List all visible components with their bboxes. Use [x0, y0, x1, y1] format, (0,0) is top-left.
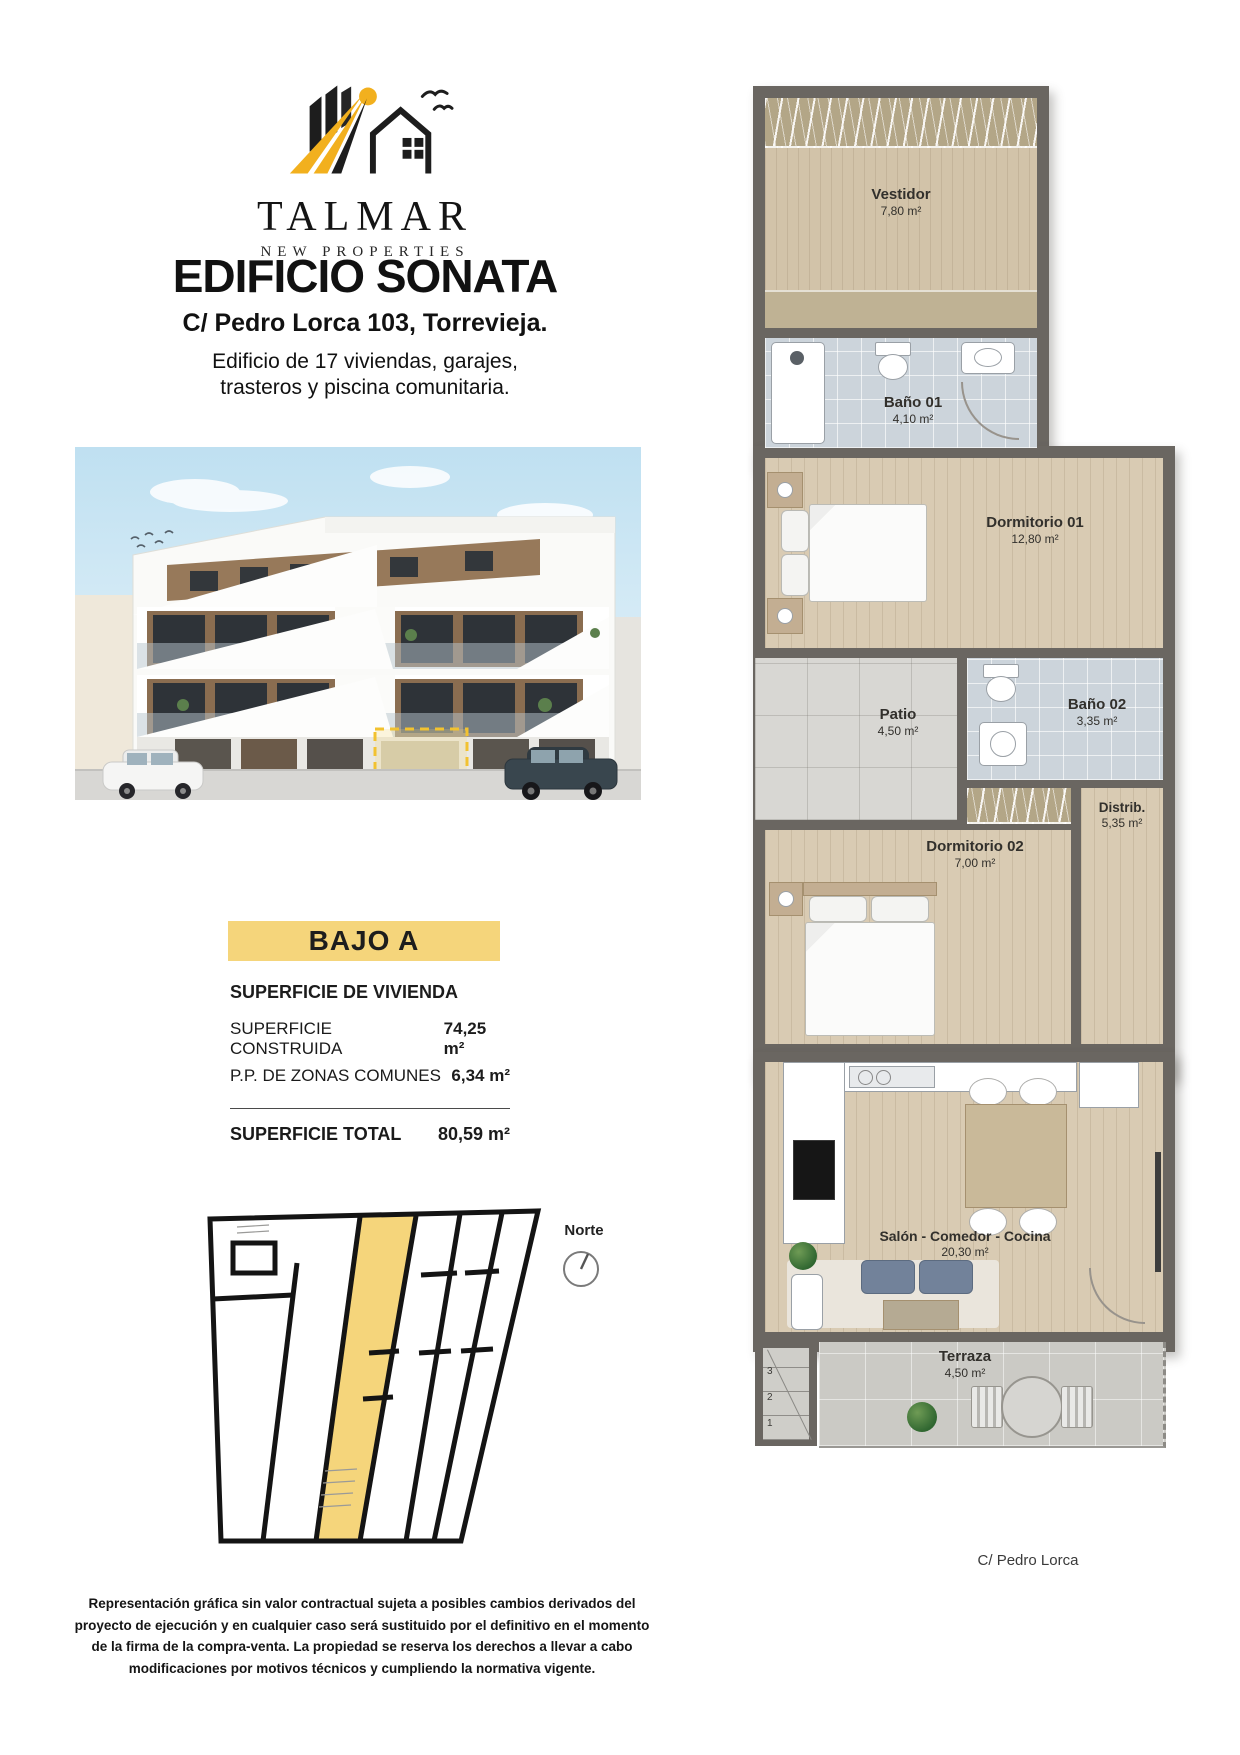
room-terraza: Terraza 4,50 m² — [819, 1342, 1166, 1448]
surface-row-label: SUPERFICIE CONSTRUIDA — [230, 1019, 444, 1059]
key-plan — [203, 1203, 548, 1548]
surface-row-value: 6,34 m² — [451, 1066, 510, 1086]
brochure-page: TALMAR NEW PROPERTIES EDIFICIO SONATA C/… — [0, 0, 1240, 1755]
street-label: C/ Pedro Lorca — [938, 1552, 1118, 1569]
room-label-dormitorio-01: Dormitorio 01 12,80 m² — [925, 514, 1145, 546]
surface-total-row: SUPERFICIE TOTAL 80,59 m² — [230, 1124, 510, 1145]
talmar-logo — [276, 80, 454, 188]
address: C/ Pedro Lorca 103, Torrevieja. — [40, 309, 690, 338]
logo-birds-icon — [422, 91, 452, 109]
surface-row-label: P.P. DE ZONAS COMUNES — [230, 1066, 441, 1086]
toilet-icon — [878, 354, 908, 380]
page-title: EDIFICIO SONATA — [40, 249, 690, 303]
dining-table-icon — [965, 1104, 1067, 1208]
wardrobe-hangers-icon — [967, 788, 1071, 824]
headboard — [803, 882, 937, 896]
room-label-bano-01: Baño 01 4,10 m² — [843, 394, 983, 426]
kitchen-sink-icon — [849, 1066, 935, 1088]
stair-step-number: 3 — [767, 1366, 773, 1377]
armchair-icon — [919, 1260, 973, 1294]
terrace-table-icon — [1001, 1376, 1063, 1438]
terrace-chair-icon — [1061, 1386, 1093, 1428]
neighbor-building-left — [75, 595, 133, 770]
surface-table-heading: SUPERFICIE DE VIVIENDA — [230, 982, 510, 1003]
washer-icon — [771, 342, 825, 444]
room-label-terraza: Terraza 4,50 m² — [885, 1348, 1045, 1380]
dining-chair-icon — [969, 1078, 1007, 1106]
room-distribuidor: Distrib. 5,35 m² — [1081, 788, 1163, 1044]
surface-total-value: 80,59 m² — [438, 1124, 510, 1145]
surface-table: SUPERFICIE DE VIVIENDA SUPERFICIE CONSTR… — [230, 982, 510, 1162]
coffee-table-icon — [883, 1300, 959, 1330]
north-label: Norte — [552, 1222, 616, 1239]
room-label-distrib: Distrib. 5,35 m² — [1085, 800, 1159, 830]
floor-plan: Vestidor 7,80 m² Baño 01 4,10 m² — [753, 86, 1175, 1450]
room-salon-comedor-cocina: Salón - Comedor - Cocina 20,30 m² — [765, 1062, 1163, 1332]
room-label-salon: Salón - Comedor - Cocina 20,30 m² — [823, 1228, 1107, 1259]
room-bano-01: Baño 01 4,10 m² — [765, 338, 1037, 448]
north-compass-icon — [558, 1246, 604, 1292]
description-line-1: Edificio de 17 viviendas, garajes, — [40, 349, 690, 375]
terrace-chair-icon — [971, 1386, 1003, 1428]
fridge-icon — [1079, 1062, 1139, 1108]
stair-step-number: 2 — [767, 1392, 773, 1403]
building-render-illustration — [75, 447, 641, 800]
room-label-bano-02: Baño 02 3,35 m² — [1037, 696, 1157, 728]
table-divider — [230, 1108, 510, 1109]
plant-icon — [907, 1402, 937, 1432]
room-dormitorio-02: Dormitorio 02 7,00 m² — [765, 830, 1071, 1044]
surface-row-value: 74,25 m² — [444, 1019, 510, 1059]
nightstand-icon — [767, 472, 803, 508]
unit-badge: BAJO A — [228, 921, 500, 961]
room-vestidor: Vestidor 7,80 m² — [765, 98, 1037, 328]
door-arc — [1089, 1268, 1145, 1324]
surface-row-zonas-comunes: P.P. DE ZONAS COMUNES 6,34 m² — [230, 1066, 510, 1086]
description: Edificio de 17 viviendas, garajes, trast… — [40, 349, 690, 401]
room-label-patio: Patio 4,50 m² — [838, 706, 957, 738]
wardrobe-shelf — [765, 290, 1037, 328]
room-bano-02: Baño 02 3,35 m² — [967, 658, 1163, 780]
surface-total-label: SUPERFICIE TOTAL — [230, 1124, 401, 1145]
cooktop-icon — [793, 1140, 835, 1200]
armchair-icon — [861, 1260, 915, 1294]
brand-name: TALMAR — [205, 193, 525, 241]
room-patio: Patio 4,50 m² — [755, 658, 957, 820]
toilet-icon — [986, 676, 1016, 702]
room-label-vestidor: Vestidor 7,80 m² — [821, 186, 981, 218]
sliding-door — [1155, 1152, 1161, 1272]
surface-row-construida: SUPERFICIE CONSTRUIDA 74,25 m² — [230, 1019, 510, 1059]
sofa-icon — [791, 1274, 823, 1330]
disclaimer: Representación gráfica sin valor contrac… — [68, 1593, 656, 1679]
logo-house-window-icon — [403, 138, 424, 159]
neighbor-building-right — [613, 617, 641, 770]
nightstand-icon — [769, 882, 803, 916]
sink-icon — [961, 342, 1015, 374]
brand-block: TALMAR NEW PROPERTIES — [205, 80, 525, 261]
room-label-dormitorio-02: Dormitorio 02 7,00 m² — [875, 838, 1071, 870]
nightstand-icon — [767, 598, 803, 634]
plant-icon — [789, 1242, 817, 1270]
building-render — [75, 447, 641, 800]
room-dormitorio-01: Dormitorio 01 12,80 m² — [765, 458, 1163, 648]
sink-icon — [979, 722, 1027, 766]
description-line-2: trasteros y piscina comunitaria. — [40, 375, 690, 401]
wardrobe-hangers-icon — [765, 98, 1037, 148]
stair-step-number: 1 — [767, 1418, 773, 1429]
dining-chair-icon — [1019, 1078, 1057, 1106]
terrace-stairs: 3 2 1 — [755, 1342, 817, 1446]
